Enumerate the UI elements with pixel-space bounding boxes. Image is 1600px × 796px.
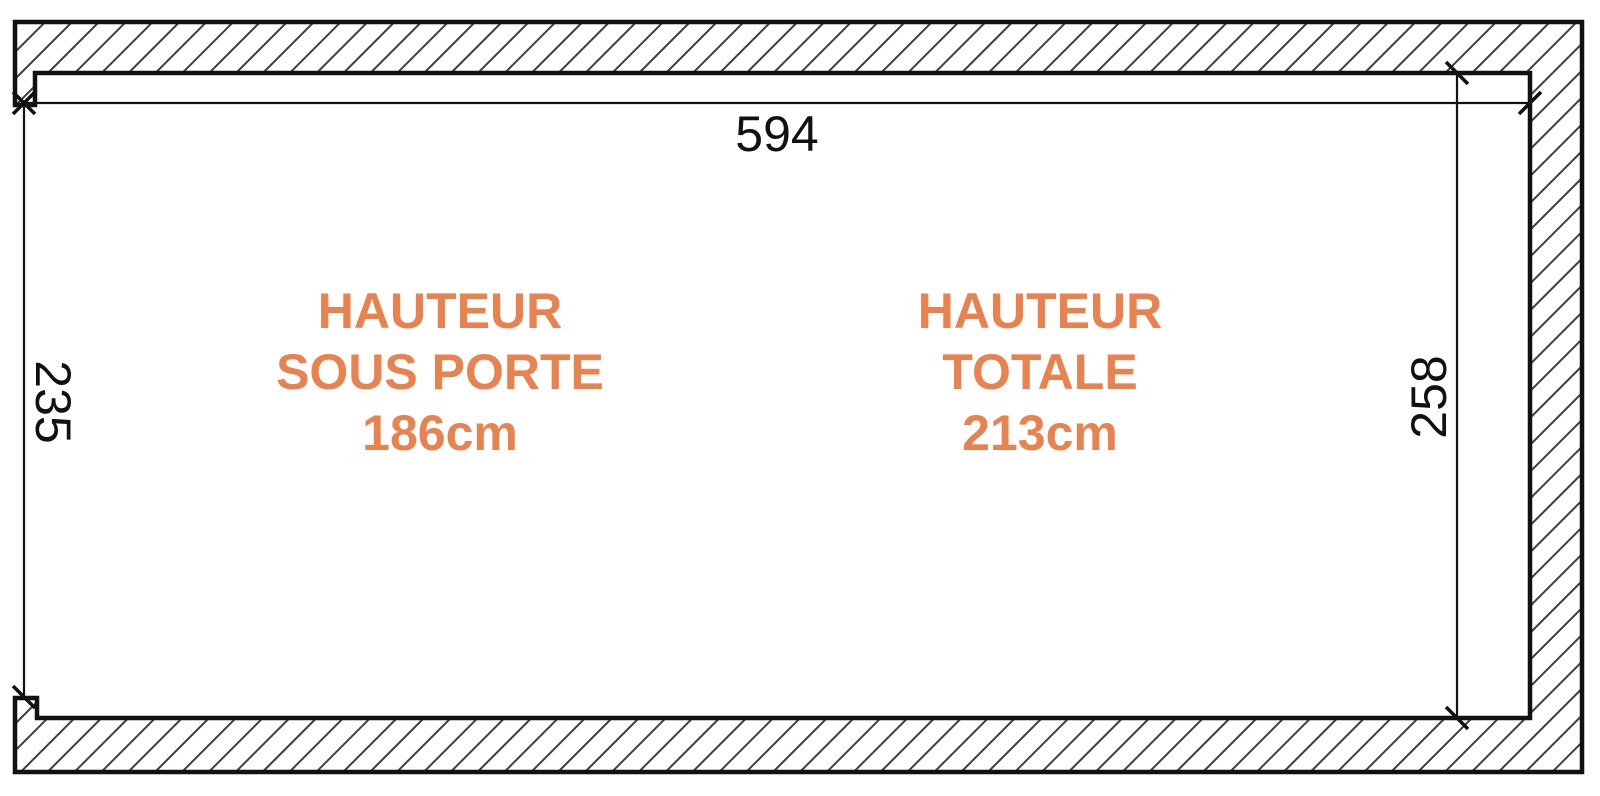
annotation-total-height-line2: TOTALE: [918, 342, 1162, 403]
annotation-total-height: HAUTEUR TOTALE 213cm: [918, 281, 1162, 464]
annotation-door-height: HAUTEUR SOUS PORTE 186cm: [276, 281, 604, 464]
annotation-door-height-line2: SOUS PORTE: [276, 342, 604, 403]
dimension-label-right-height: 258: [1403, 355, 1455, 438]
annotation-door-height-line3: 186cm: [276, 403, 604, 464]
annotation-total-height-line3: 213cm: [918, 403, 1162, 464]
annotation-total-height-line1: HAUTEUR: [918, 281, 1162, 342]
annotation-door-height-line1: HAUTEUR: [276, 281, 604, 342]
section-drawing: 594 235 258 HAUTEUR SOUS PORTE 186cm HAU…: [0, 0, 1600, 796]
dimension-label-top-width: 594: [735, 108, 818, 160]
dimension-label-left-height: 235: [27, 360, 79, 443]
